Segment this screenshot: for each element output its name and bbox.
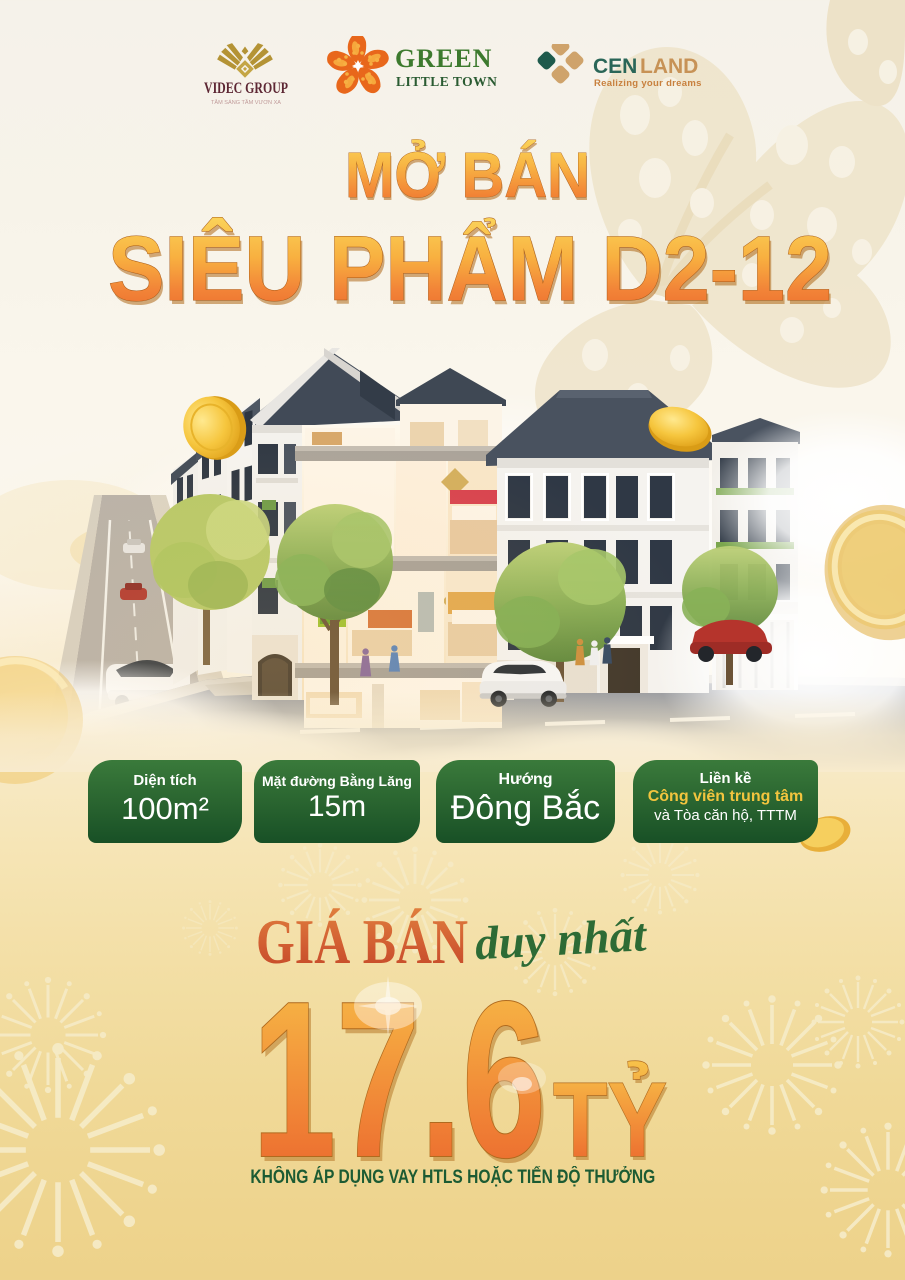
svg-text:LAND: LAND	[640, 55, 698, 78]
svg-text:GREEN: GREEN	[395, 44, 492, 73]
svg-text:SIÊU PHẨM D2-12: SIÊU PHẨM D2-12	[108, 216, 832, 310]
svg-text:LITTLE TOWN: LITTLE TOWN	[396, 74, 497, 89]
svg-text:TỶ: TỶ	[553, 1061, 667, 1175]
svg-text:Realizing your dreams: Realizing your dreams	[594, 78, 702, 89]
svg-text:TÂM SÁNG TẦM VƯƠN XA: TÂM SÁNG TẦM VƯƠN XA	[211, 99, 281, 106]
svg-text:VIDEC GROUP: VIDEC GROUP	[204, 80, 288, 97]
svg-text:CEN: CEN	[593, 55, 637, 78]
